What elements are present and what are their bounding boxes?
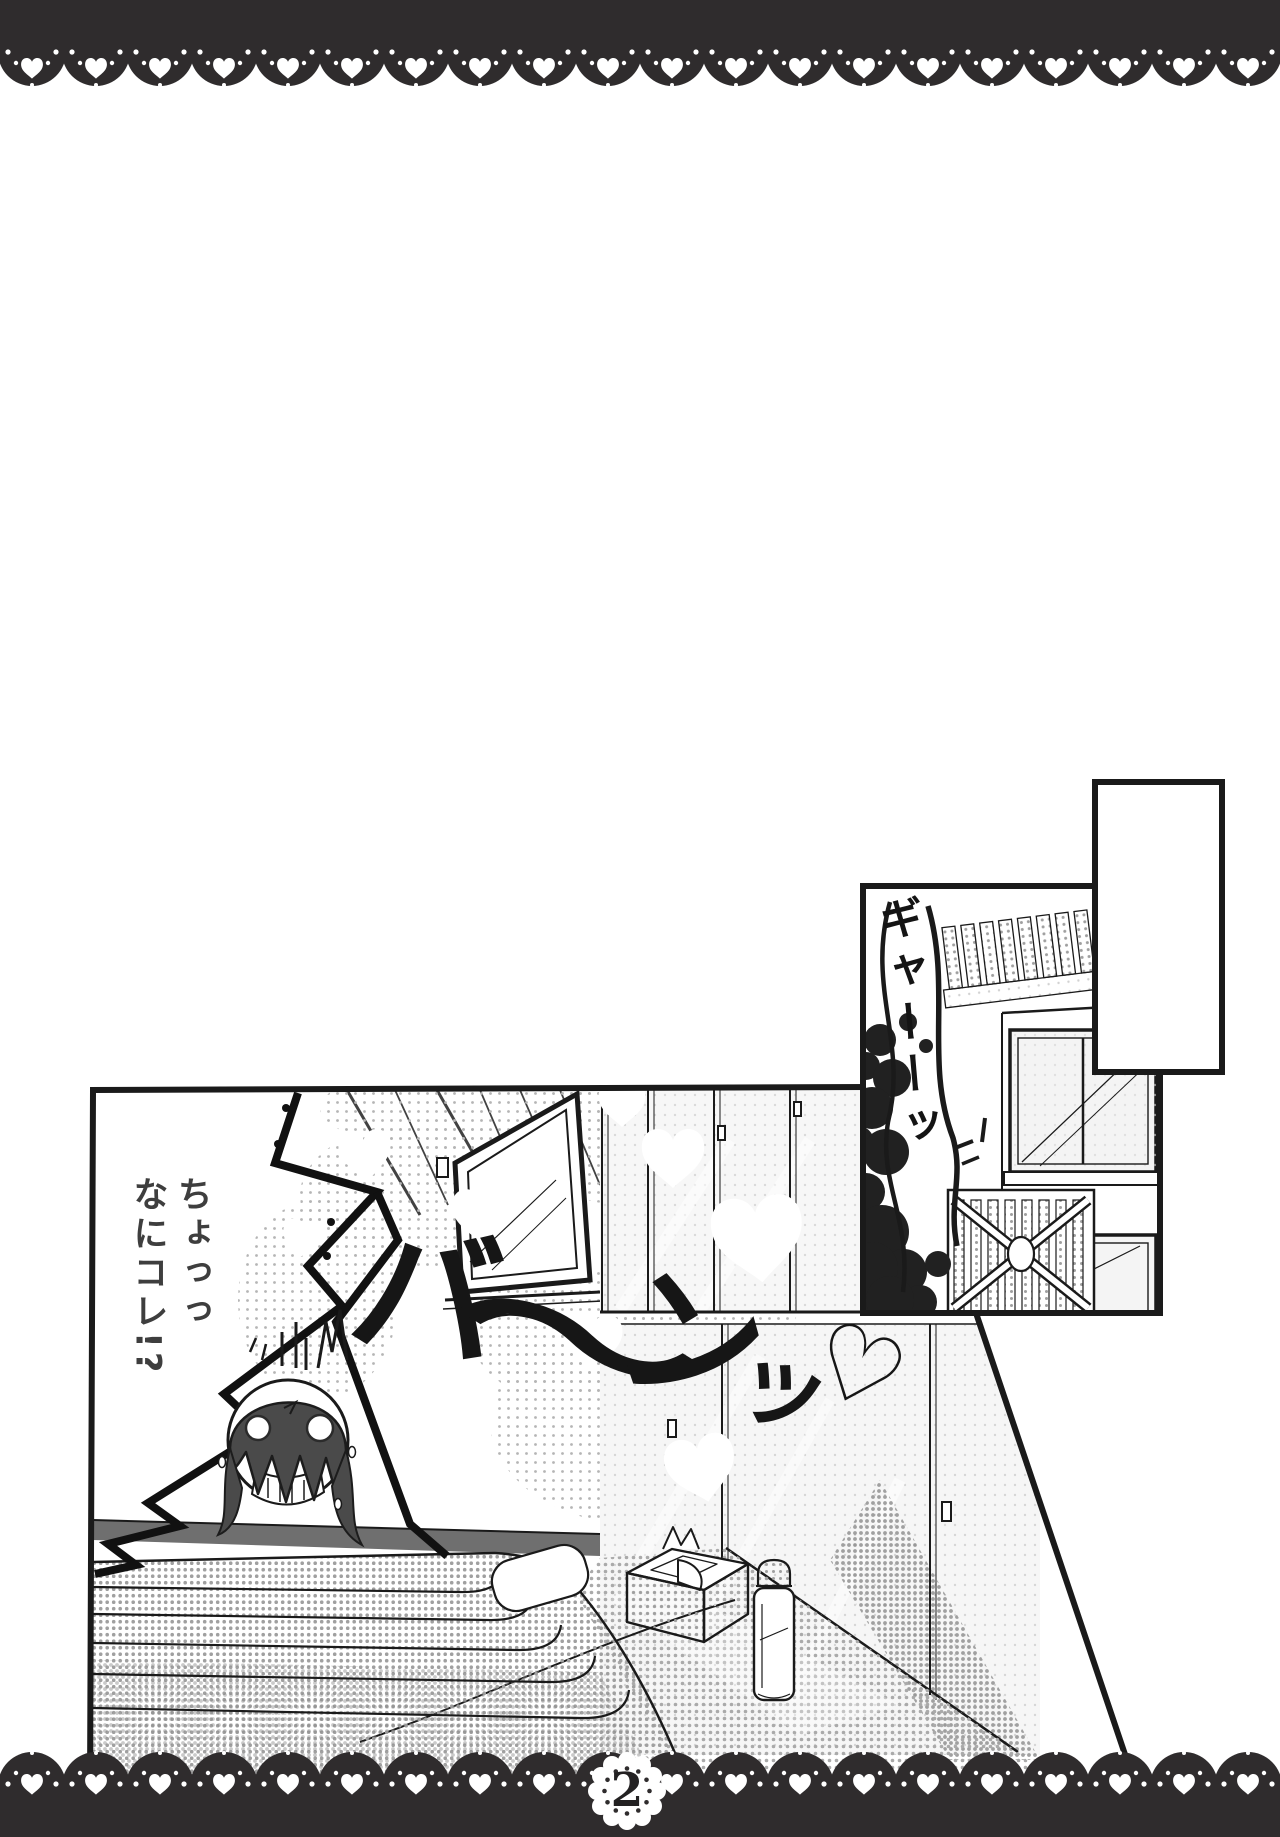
eye <box>246 1416 270 1440</box>
manga-artwork <box>0 0 1280 1837</box>
manga-page: ちょっっ なにコレ!? バ 〜 ン ッ ♡ ギャーーッ 2 <box>0 0 1280 1837</box>
eye <box>307 1415 333 1441</box>
gate <box>948 1190 1094 1313</box>
lotion-bottle <box>754 1560 794 1700</box>
blank-panel <box>1095 782 1222 1072</box>
top-lace-border <box>0 0 1280 96</box>
